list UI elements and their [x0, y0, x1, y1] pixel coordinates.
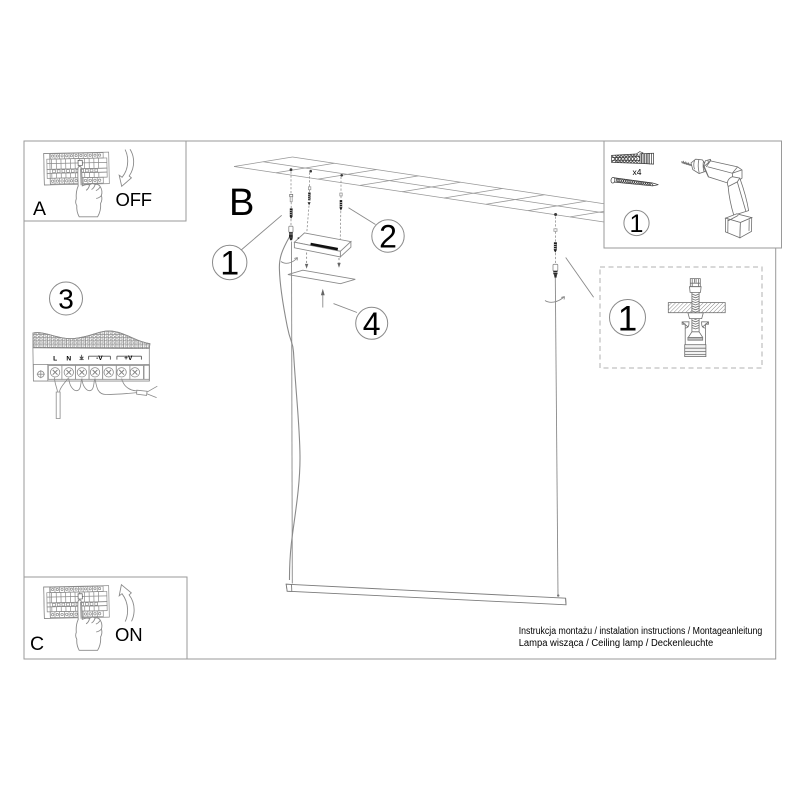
svg-text:1: 1 — [220, 245, 239, 283]
svg-text:+V: +V — [124, 355, 133, 362]
svg-text:1: 1 — [618, 299, 637, 338]
svg-text:ON: ON — [115, 624, 142, 645]
svg-text:A: A — [33, 198, 46, 220]
svg-text:2: 2 — [379, 219, 397, 255]
svg-text:L: L — [53, 356, 57, 363]
svg-text:Instrukcja montażu / instalati: Instrukcja montażu / instalation instruc… — [519, 626, 763, 637]
svg-text:4: 4 — [363, 306, 381, 342]
svg-text:x4: x4 — [633, 167, 642, 177]
svg-text:OFF: OFF — [116, 189, 152, 210]
svg-text:Lampa wisząca / Ceiling lamp /: Lampa wisząca / Ceiling lamp / Deckenleu… — [519, 638, 714, 649]
svg-text:N: N — [66, 356, 71, 363]
svg-text:B: B — [229, 182, 254, 224]
svg-text:C: C — [30, 633, 44, 655]
svg-text:3: 3 — [58, 284, 74, 315]
svg-text:-V: -V — [96, 355, 103, 362]
svg-text:1: 1 — [630, 210, 644, 238]
